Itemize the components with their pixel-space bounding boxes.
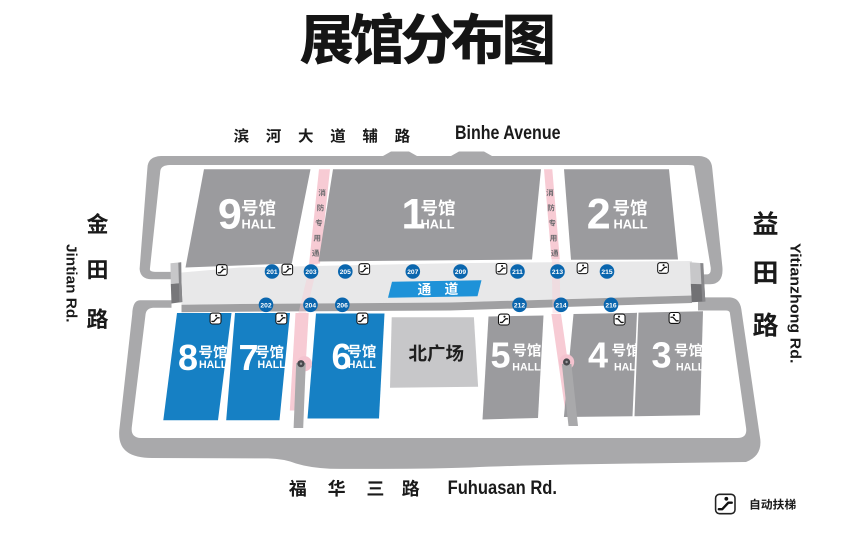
svg-text:HALL: HALL	[258, 359, 287, 371]
svg-text:Yitianzhong Rd.: Yitianzhong Rd.	[787, 243, 804, 364]
svg-text:204: 204	[305, 302, 316, 309]
svg-text:Jintian Rd.: Jintian Rd.	[63, 244, 80, 323]
svg-text:HALL: HALL	[348, 359, 377, 371]
svg-text:4: 4	[588, 335, 608, 376]
svg-text:HALL: HALL	[199, 359, 228, 371]
svg-text:211: 211	[512, 269, 523, 276]
svg-text:HALL: HALL	[614, 216, 648, 231]
svg-text:213: 213	[552, 269, 563, 276]
svg-text:8: 8	[178, 337, 198, 378]
svg-text:2: 2	[587, 191, 611, 239]
svg-text:202: 202	[260, 302, 271, 309]
svg-text:HALL: HALL	[242, 216, 276, 231]
svg-text:209: 209	[455, 269, 466, 276]
svg-text:214: 214	[555, 302, 566, 309]
svg-text:3: 3	[652, 335, 672, 376]
svg-text:Binhe Avenue: Binhe Avenue	[455, 122, 561, 144]
svg-text:Fuhuasan Rd.: Fuhuasan Rd.	[448, 477, 557, 499]
svg-text:7: 7	[239, 337, 259, 378]
svg-text:206: 206	[337, 302, 348, 309]
svg-text:HALL: HALL	[421, 216, 455, 231]
svg-text:216: 216	[605, 302, 616, 309]
svg-text:215: 215	[601, 269, 612, 276]
svg-text:5: 5	[491, 335, 511, 376]
svg-text:212: 212	[514, 302, 525, 309]
svg-text:205: 205	[340, 269, 351, 276]
svg-text:207: 207	[407, 269, 418, 276]
svg-text:9: 9	[218, 191, 242, 239]
svg-text:HALL: HALL	[676, 362, 705, 374]
svg-text:HALL: HALL	[512, 362, 541, 374]
svg-text:1: 1	[402, 191, 426, 239]
svg-text:203: 203	[305, 269, 316, 276]
svg-text:201: 201	[266, 269, 277, 276]
